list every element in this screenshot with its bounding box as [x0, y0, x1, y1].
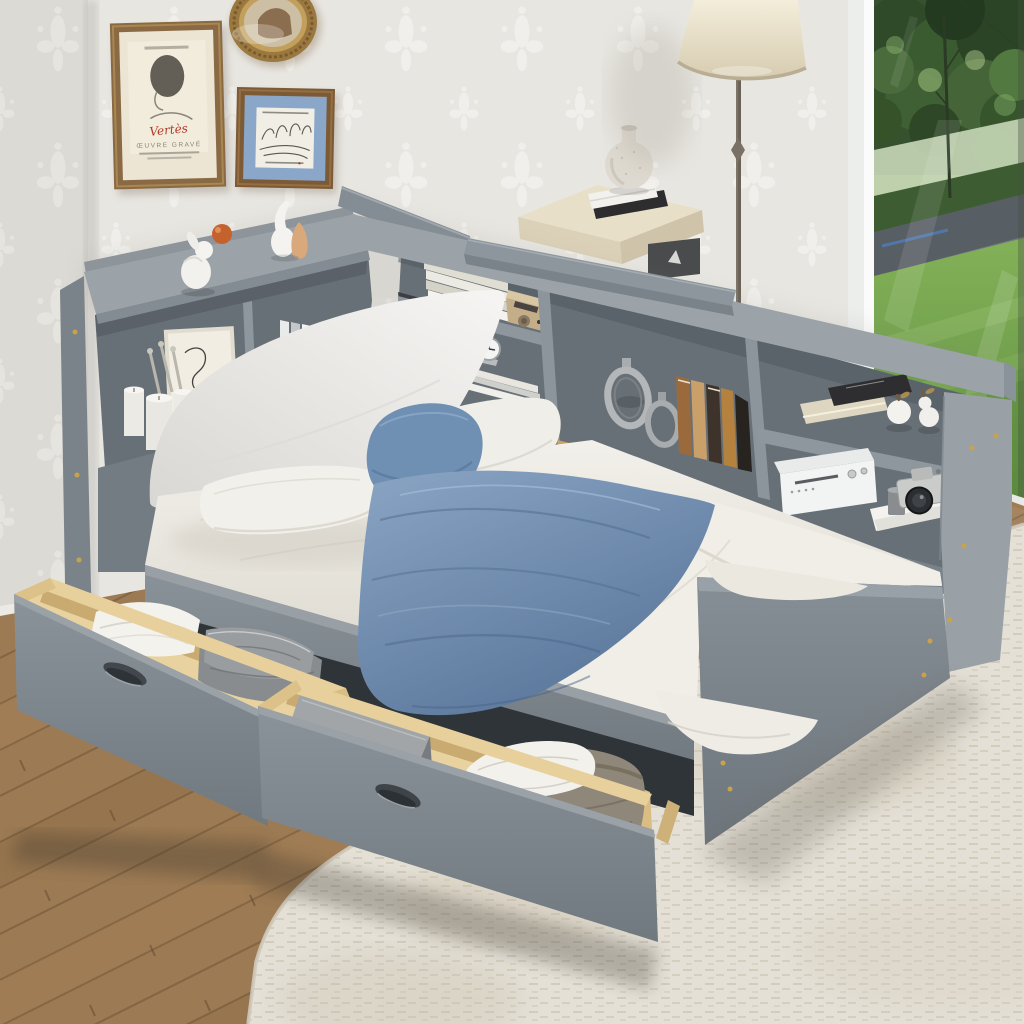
right-end-panel [940, 392, 1012, 672]
poster-frame: Vertès ŒUVRE GRAVÉ [110, 20, 230, 195]
gallery-wall: Vertès ŒUVRE GRAVÉ [110, 0, 339, 195]
sketch-frame [235, 87, 339, 194]
product-photo: Vertès ŒUVRE GRAVÉ [0, 0, 1024, 1024]
right-end-cap [1004, 362, 1016, 402]
orange-ball [212, 224, 232, 244]
leaning-frame [648, 238, 700, 280]
